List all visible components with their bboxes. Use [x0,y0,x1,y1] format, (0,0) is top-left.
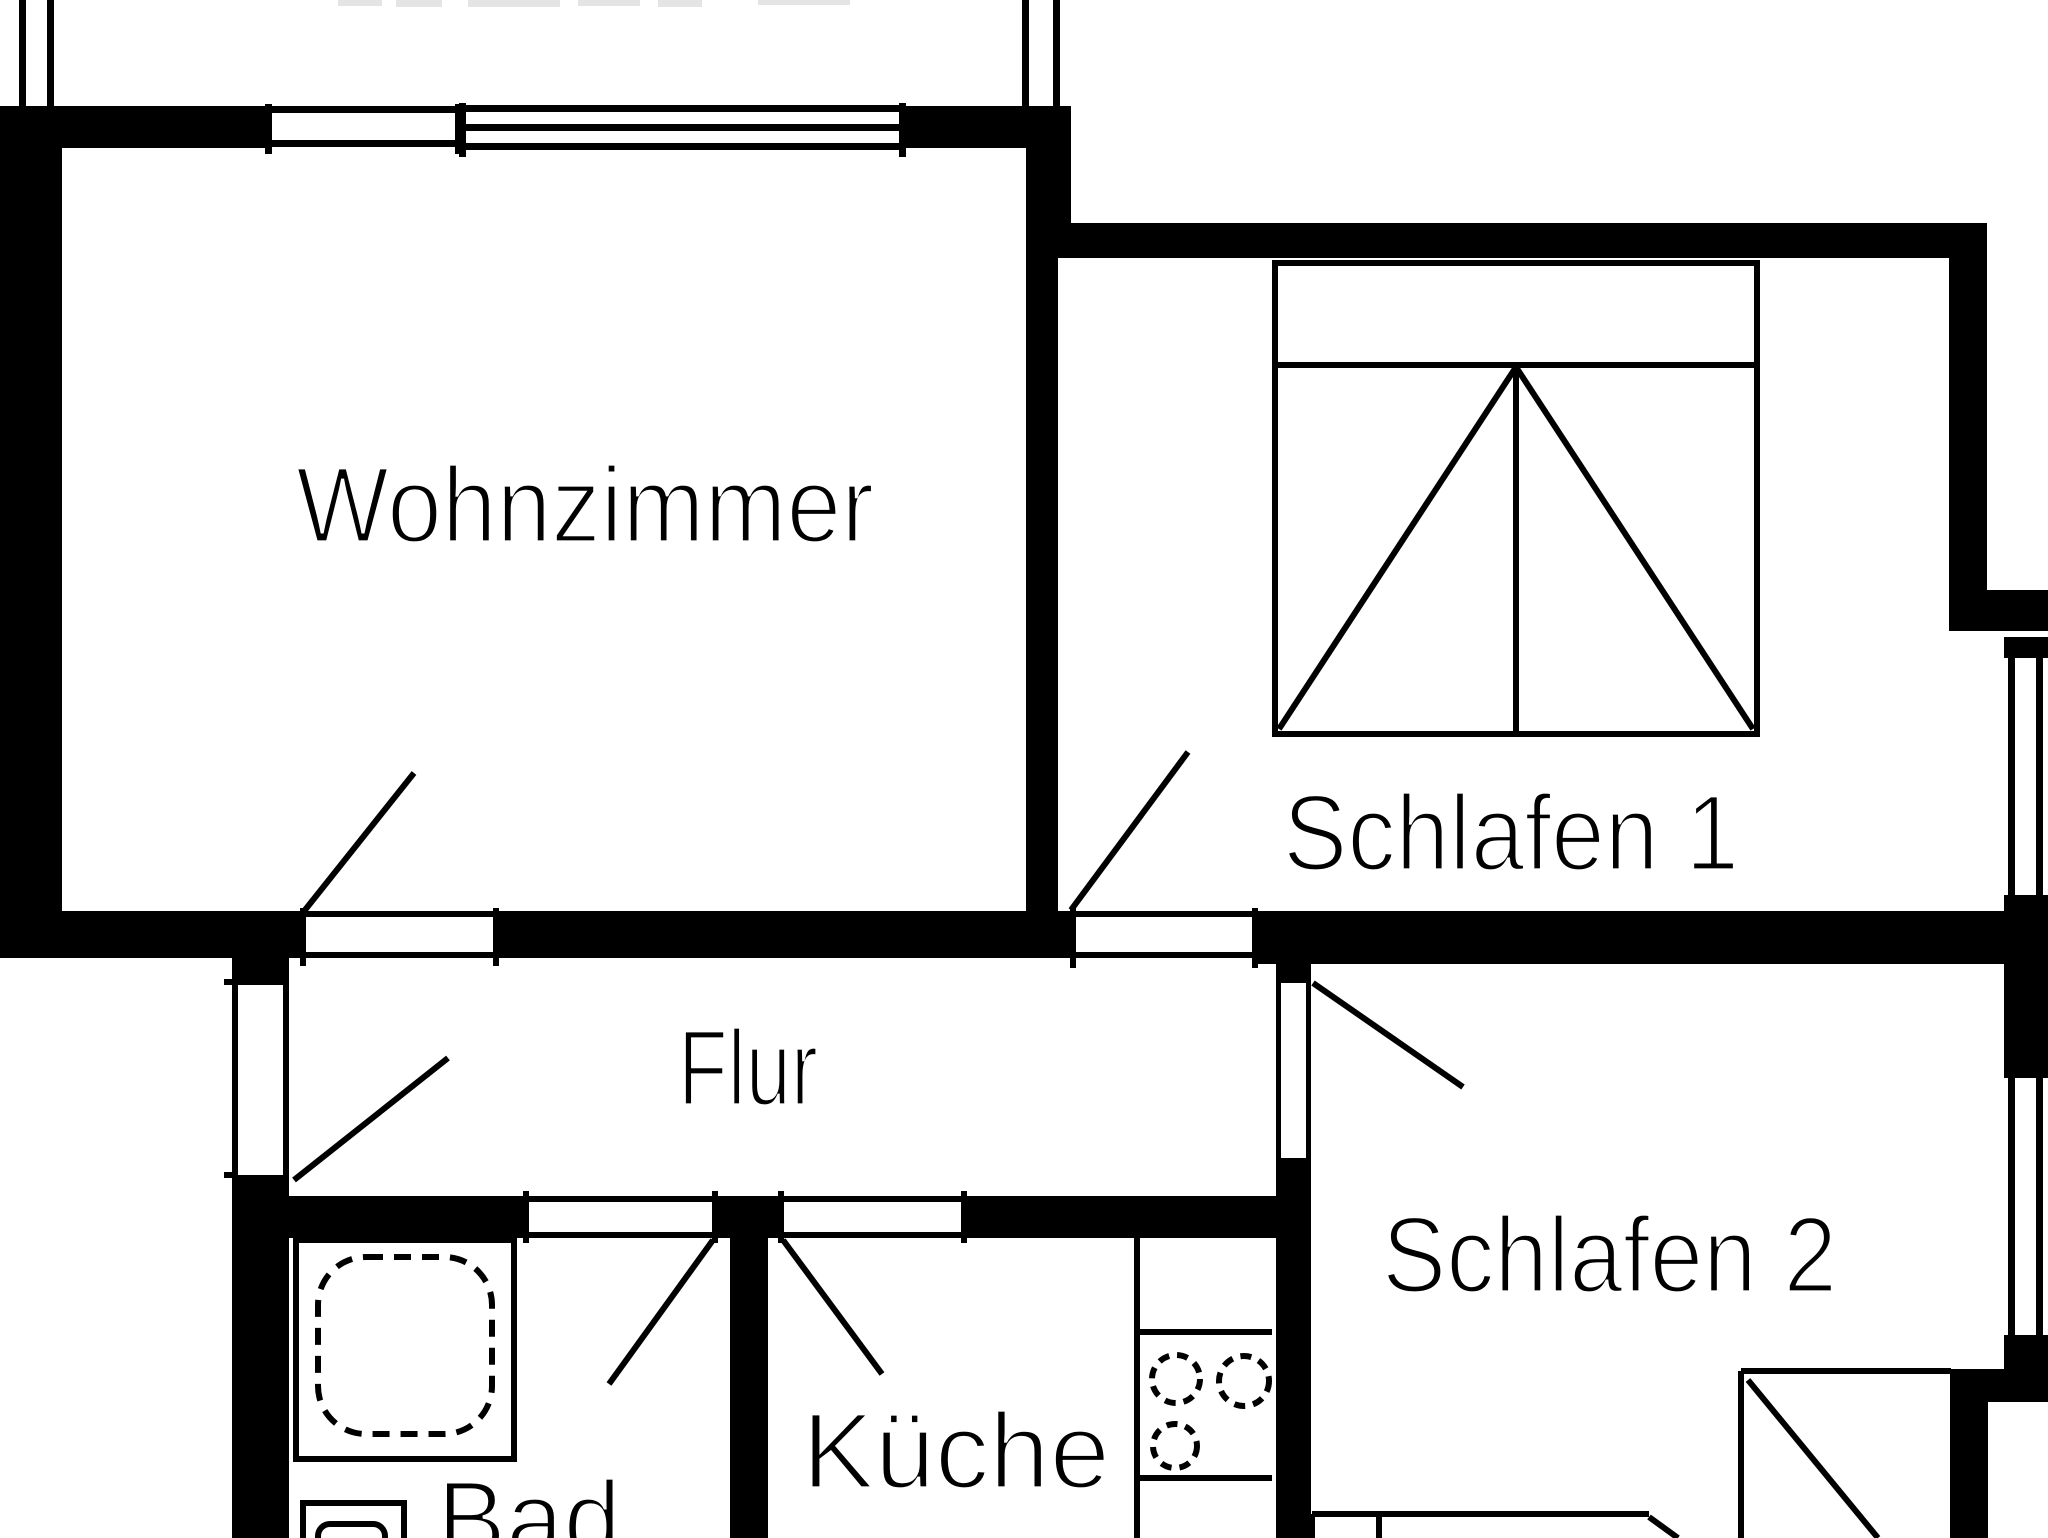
svg-text:Schlafen 2: Schlafen 2 [1382,1194,1837,1315]
svg-text:Küche: Küche [802,1390,1110,1511]
svg-text:Wohnzimmer: Wohnzimmer [296,444,874,565]
svg-text:Bad: Bad [437,1458,621,1538]
svg-text:Flur: Flur [678,1007,818,1128]
svg-text:Schlafen 1: Schlafen 1 [1283,772,1739,893]
